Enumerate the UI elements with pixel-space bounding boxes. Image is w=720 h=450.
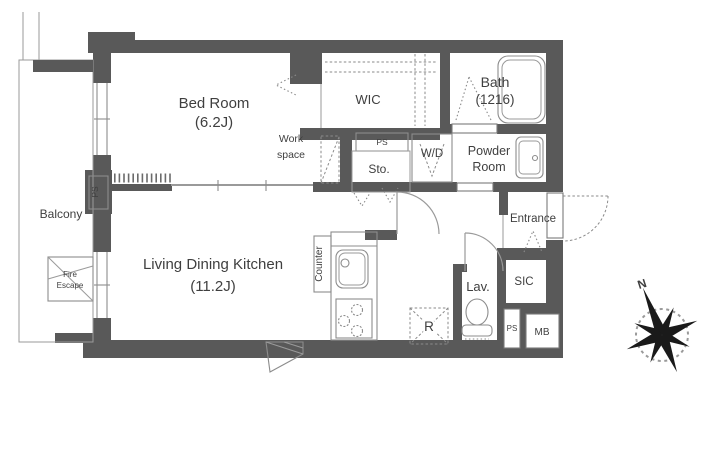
wic-label: WIC bbox=[355, 92, 380, 107]
ldk-label: Living Dining Kitchen bbox=[143, 256, 283, 273]
ps-wall-label: PS bbox=[90, 186, 100, 198]
laundry-label: W/D bbox=[421, 148, 443, 160]
powder-door bbox=[457, 183, 493, 191]
bedroom-label: Bed Room bbox=[179, 95, 250, 112]
compass-north-label: N bbox=[636, 276, 649, 292]
storage-label: Sto. bbox=[368, 162, 389, 176]
bath-label: Bath bbox=[481, 74, 510, 90]
balcony-label: Balcony bbox=[40, 207, 83, 221]
bedroom-window bbox=[94, 83, 110, 155]
fire-escape-hatch bbox=[48, 257, 93, 301]
labels: Bed Room (6.2J) Living Dining Kitchen (1… bbox=[40, 74, 556, 338]
work-space-desk bbox=[321, 136, 339, 183]
ldk-window bbox=[94, 252, 110, 318]
entrance-door bbox=[547, 193, 608, 241]
kitchen-stove bbox=[336, 299, 372, 338]
bedroom-size: (6.2J) bbox=[195, 114, 233, 131]
powder-room-label-2: Room bbox=[472, 160, 505, 174]
floorplan-svg: N Bed Room (6.2J) Living Dining Kitchen … bbox=[0, 0, 720, 450]
lavatory-label: Lav. bbox=[466, 279, 490, 294]
kitchen-sink bbox=[336, 250, 368, 288]
work-space-label-2: space bbox=[277, 149, 305, 161]
refrigerator-label: R bbox=[424, 319, 434, 334]
washbasin bbox=[516, 137, 543, 178]
floorplan-page: N Bed Room (6.2J) Living Dining Kitchen … bbox=[0, 0, 720, 450]
bath-size: (1216) bbox=[475, 92, 514, 107]
entrance-label: Entrance bbox=[510, 213, 556, 225]
sic-label: SIC bbox=[514, 276, 533, 288]
fire-escape-label-1: Fire bbox=[63, 270, 77, 279]
mb-label: MB bbox=[535, 327, 550, 338]
powder-room-label-1: Powder bbox=[468, 144, 510, 158]
work-space-label-1: Work bbox=[279, 133, 304, 145]
counter-label: Counter bbox=[314, 246, 325, 282]
wic-shelves bbox=[325, 54, 437, 126]
toilet bbox=[462, 299, 492, 339]
balcony-structure bbox=[19, 12, 93, 342]
ps-wic-label: PS bbox=[376, 137, 388, 147]
ldk-door bbox=[397, 192, 439, 234]
ldk-size: (11.2J) bbox=[190, 278, 236, 295]
storage-arrow bbox=[354, 193, 370, 206]
compass: N bbox=[604, 272, 718, 390]
ps-entry-label: PS bbox=[507, 324, 518, 333]
fire-escape-label-2: Escape bbox=[57, 281, 84, 290]
